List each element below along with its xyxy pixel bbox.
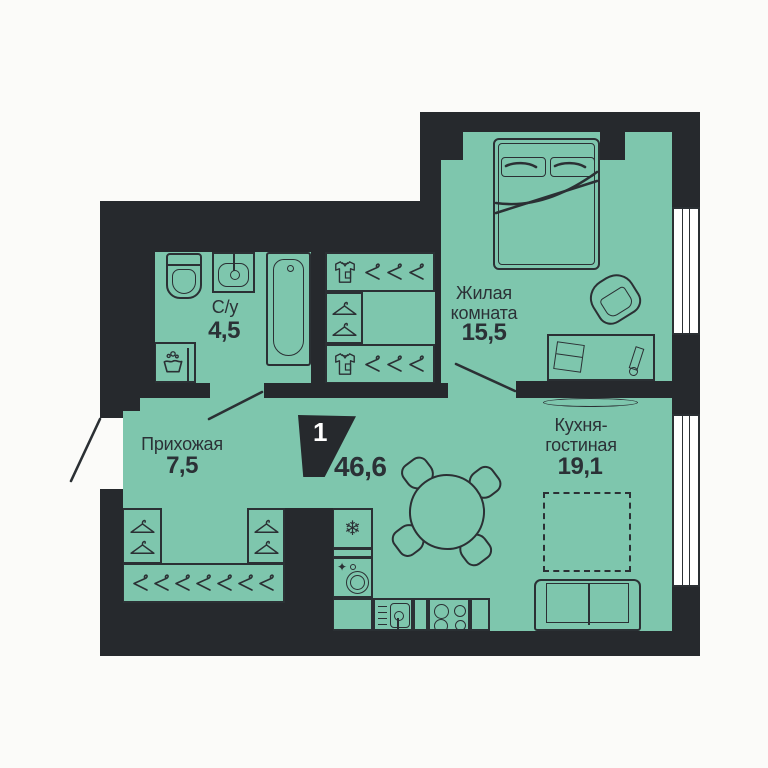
faucet [394,611,404,621]
wall-kitchen-bedroom [516,381,672,398]
wall-bed-niche-right [600,132,625,160]
counter-corner-cell [332,598,373,631]
wall-bathroom-right [311,252,325,383]
stove-icon [428,598,470,631]
floor-plan: ❄ ✦ [0,0,768,768]
hall-wardrobe-left [122,508,162,564]
faucet-stem [397,618,399,631]
wardrobe-hanger-cell [325,292,363,344]
wall-step [420,112,441,252]
entrance-door-swing [71,419,100,481]
hanger-top-icon [129,517,156,534]
wardrobe-shelf-bottom [325,344,435,384]
desk-lamp-base [629,367,638,376]
kitchen-sink-icon [373,598,413,631]
sofa-icon [534,579,641,631]
hanger-side-icon [173,573,193,594]
sofa-seat-divider [588,584,590,625]
toilet-icon [166,253,202,299]
laptop-icon [553,341,585,373]
shirt-icon [333,350,357,378]
dishwasher-icon: ✦ [332,557,373,598]
hallway-area: 7,5 [166,452,198,480]
wall-stub-entrance [123,396,140,411]
sparkle-icon: ✦ [337,560,347,574]
hanger-side-icon [152,573,172,594]
livingroom-area: 15,5 [462,319,507,347]
livingroom-label: Жилая комната [451,283,518,323]
shirt-icon [333,258,357,286]
toilet-tank-line [168,264,200,266]
wall-wardrobe-right [435,252,441,383]
hallway-label: Прихожая [141,434,223,454]
kitchen-label-line2: гостиная [545,435,617,455]
hanger-side-icon [131,573,151,594]
wall-left-upper [100,201,123,418]
dining-group [388,451,506,572]
wall-bed-niche-left [441,132,463,160]
hanger-top-icon [331,320,358,337]
hanger-top-icon [253,538,280,555]
rug-zone [543,492,631,572]
fridge-icon: ❄ [332,508,373,549]
hanger-side-icon [407,262,427,283]
wall-hall-top [264,383,448,398]
pillow-icon [550,157,595,177]
wall-top-left [100,201,441,252]
desk-icon [547,334,655,381]
sink-faucet-stem [233,254,235,271]
hall-wardrobe-right [247,508,285,564]
bathroom-label: С/у [212,297,238,317]
hanger-side-icon [363,354,383,375]
window-glass [682,416,690,585]
hanger-side-icon [236,573,256,594]
wall-kitchen-left [285,508,333,631]
armchair-seat [599,285,635,319]
hanger-side-icon [194,573,214,594]
wall-bottom-right [333,631,700,656]
hanger-side-icon [363,262,383,283]
burner [454,605,466,617]
hall-wardrobe-long [122,563,285,603]
bubble [350,564,356,570]
washing-machine-icon [154,342,196,383]
washer-door-line [187,348,189,381]
window-bedroom [672,207,700,335]
counter-cell [413,598,428,631]
wall-right-middle [672,335,700,414]
pillow-icon [501,157,546,177]
hanger-side-icon [257,573,277,594]
burner [455,620,466,631]
wardrobe-shelf-top [325,252,435,292]
kitchen-label: Кухня- гостиная [545,415,617,455]
snowflake-icon: ❄ [344,516,361,541]
wall-bathroom-left [123,252,155,398]
counter-cell [470,598,490,631]
kitchen-area: 19,1 [558,453,603,481]
sink-icon [212,252,255,293]
hanger-top-icon [129,538,156,555]
sink-faucet [230,270,240,280]
laundry-basin-icon [160,350,186,376]
window-kitchen [672,414,700,587]
wall-bedroom-top [420,112,700,132]
tv-icon [543,398,638,407]
bathroom-area: 4,5 [208,317,240,345]
plate-inner [350,575,365,590]
hanger-side-icon [215,573,235,594]
rooms-count: 1 [313,417,327,448]
kitchen-label-line1: Кухня- [545,415,617,435]
bed-icon [493,138,600,270]
livingroom-label-line1: Жилая [451,283,518,303]
bathtub-drain [287,265,294,272]
hanger-side-icon [385,262,405,283]
hanger-top-icon [253,517,280,534]
hanger-top-icon [331,299,358,316]
toilet-bowl [172,269,196,294]
total-area: 46,6 [334,451,387,483]
hanger-side-icon [407,354,427,375]
burner [434,604,449,619]
bathtub-inner [273,259,304,356]
wall-right-upper [672,112,700,207]
hanger-side-icon [385,354,405,375]
bathtub-icon [266,252,311,366]
window-glass [682,209,690,333]
